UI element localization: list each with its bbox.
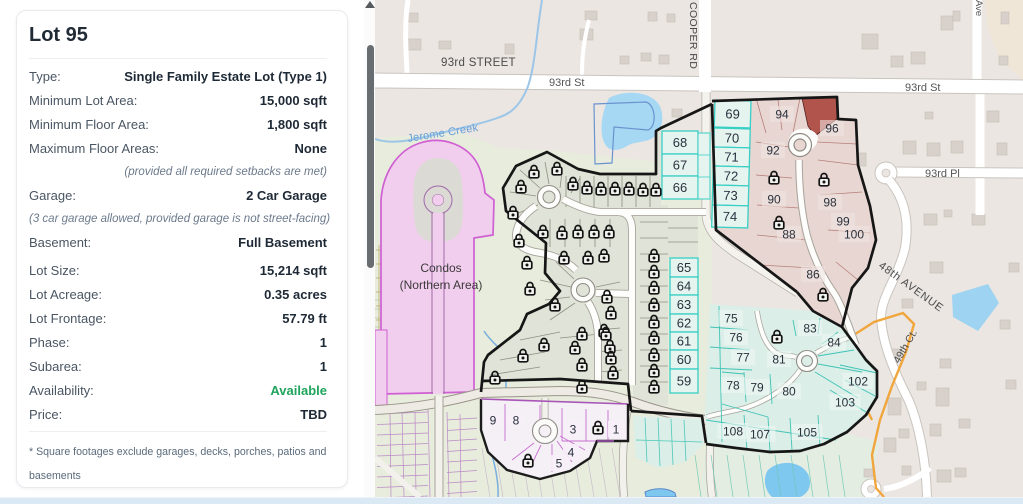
svg-text:94: 94 [775,108,789,122]
svg-text:105: 105 [797,426,817,440]
svg-text:78: 78 [726,379,740,393]
svg-text:98: 98 [823,196,837,210]
svg-text:62: 62 [677,316,691,331]
svg-text:92: 92 [766,144,780,158]
svg-text:74: 74 [723,209,738,224]
svg-text:64: 64 [677,279,691,294]
svg-text:68: 68 [673,135,687,150]
svg-text:Condos: Condos [420,261,461,275]
svg-text:67: 67 [673,158,687,173]
svg-text:93rd Pl: 93rd Pl [925,168,960,180]
svg-text:108: 108 [723,425,743,439]
svg-text:65: 65 [677,260,691,275]
svg-text:Ave: Ave [973,0,984,16]
svg-text:102: 102 [848,375,868,389]
svg-text:93rd St: 93rd St [549,77,584,89]
svg-text:93rd STREET: 93rd STREET [441,57,516,69]
svg-text:100: 100 [844,228,864,242]
svg-text:63: 63 [677,297,691,312]
svg-text:3: 3 [570,423,577,437]
svg-text:61: 61 [677,334,691,349]
svg-text:84: 84 [827,336,841,350]
svg-text:69: 69 [725,106,740,121]
svg-text:103: 103 [835,396,855,410]
svg-text:81: 81 [772,353,786,367]
svg-text:9: 9 [490,414,497,428]
svg-text:90: 90 [767,193,781,207]
svg-text:COOPER RD: COOPER RD [687,2,699,69]
svg-text:70: 70 [725,130,740,145]
svg-text:77: 77 [736,351,750,365]
svg-text:1: 1 [613,423,620,437]
svg-text:76: 76 [729,331,743,345]
svg-text:(Northern Area): (Northern Area) [400,278,483,292]
svg-text:72: 72 [724,168,739,183]
svg-text:79: 79 [750,381,764,395]
svg-text:83: 83 [803,322,817,336]
svg-text:88: 88 [782,228,796,242]
svg-text:60: 60 [677,352,691,367]
svg-text:66: 66 [673,180,687,195]
svg-text:4: 4 [568,446,575,460]
svg-text:80: 80 [782,385,796,399]
svg-text:73: 73 [723,188,738,203]
svg-text:5: 5 [556,457,563,471]
svg-text:86: 86 [806,268,820,282]
svg-text:59: 59 [677,374,691,389]
svg-text:96: 96 [825,122,839,136]
svg-text:107: 107 [750,428,770,442]
svg-text:93rd St: 93rd St [905,82,940,94]
svg-text:8: 8 [513,414,520,428]
svg-text:75: 75 [724,312,738,326]
svg-text:71: 71 [724,149,739,164]
